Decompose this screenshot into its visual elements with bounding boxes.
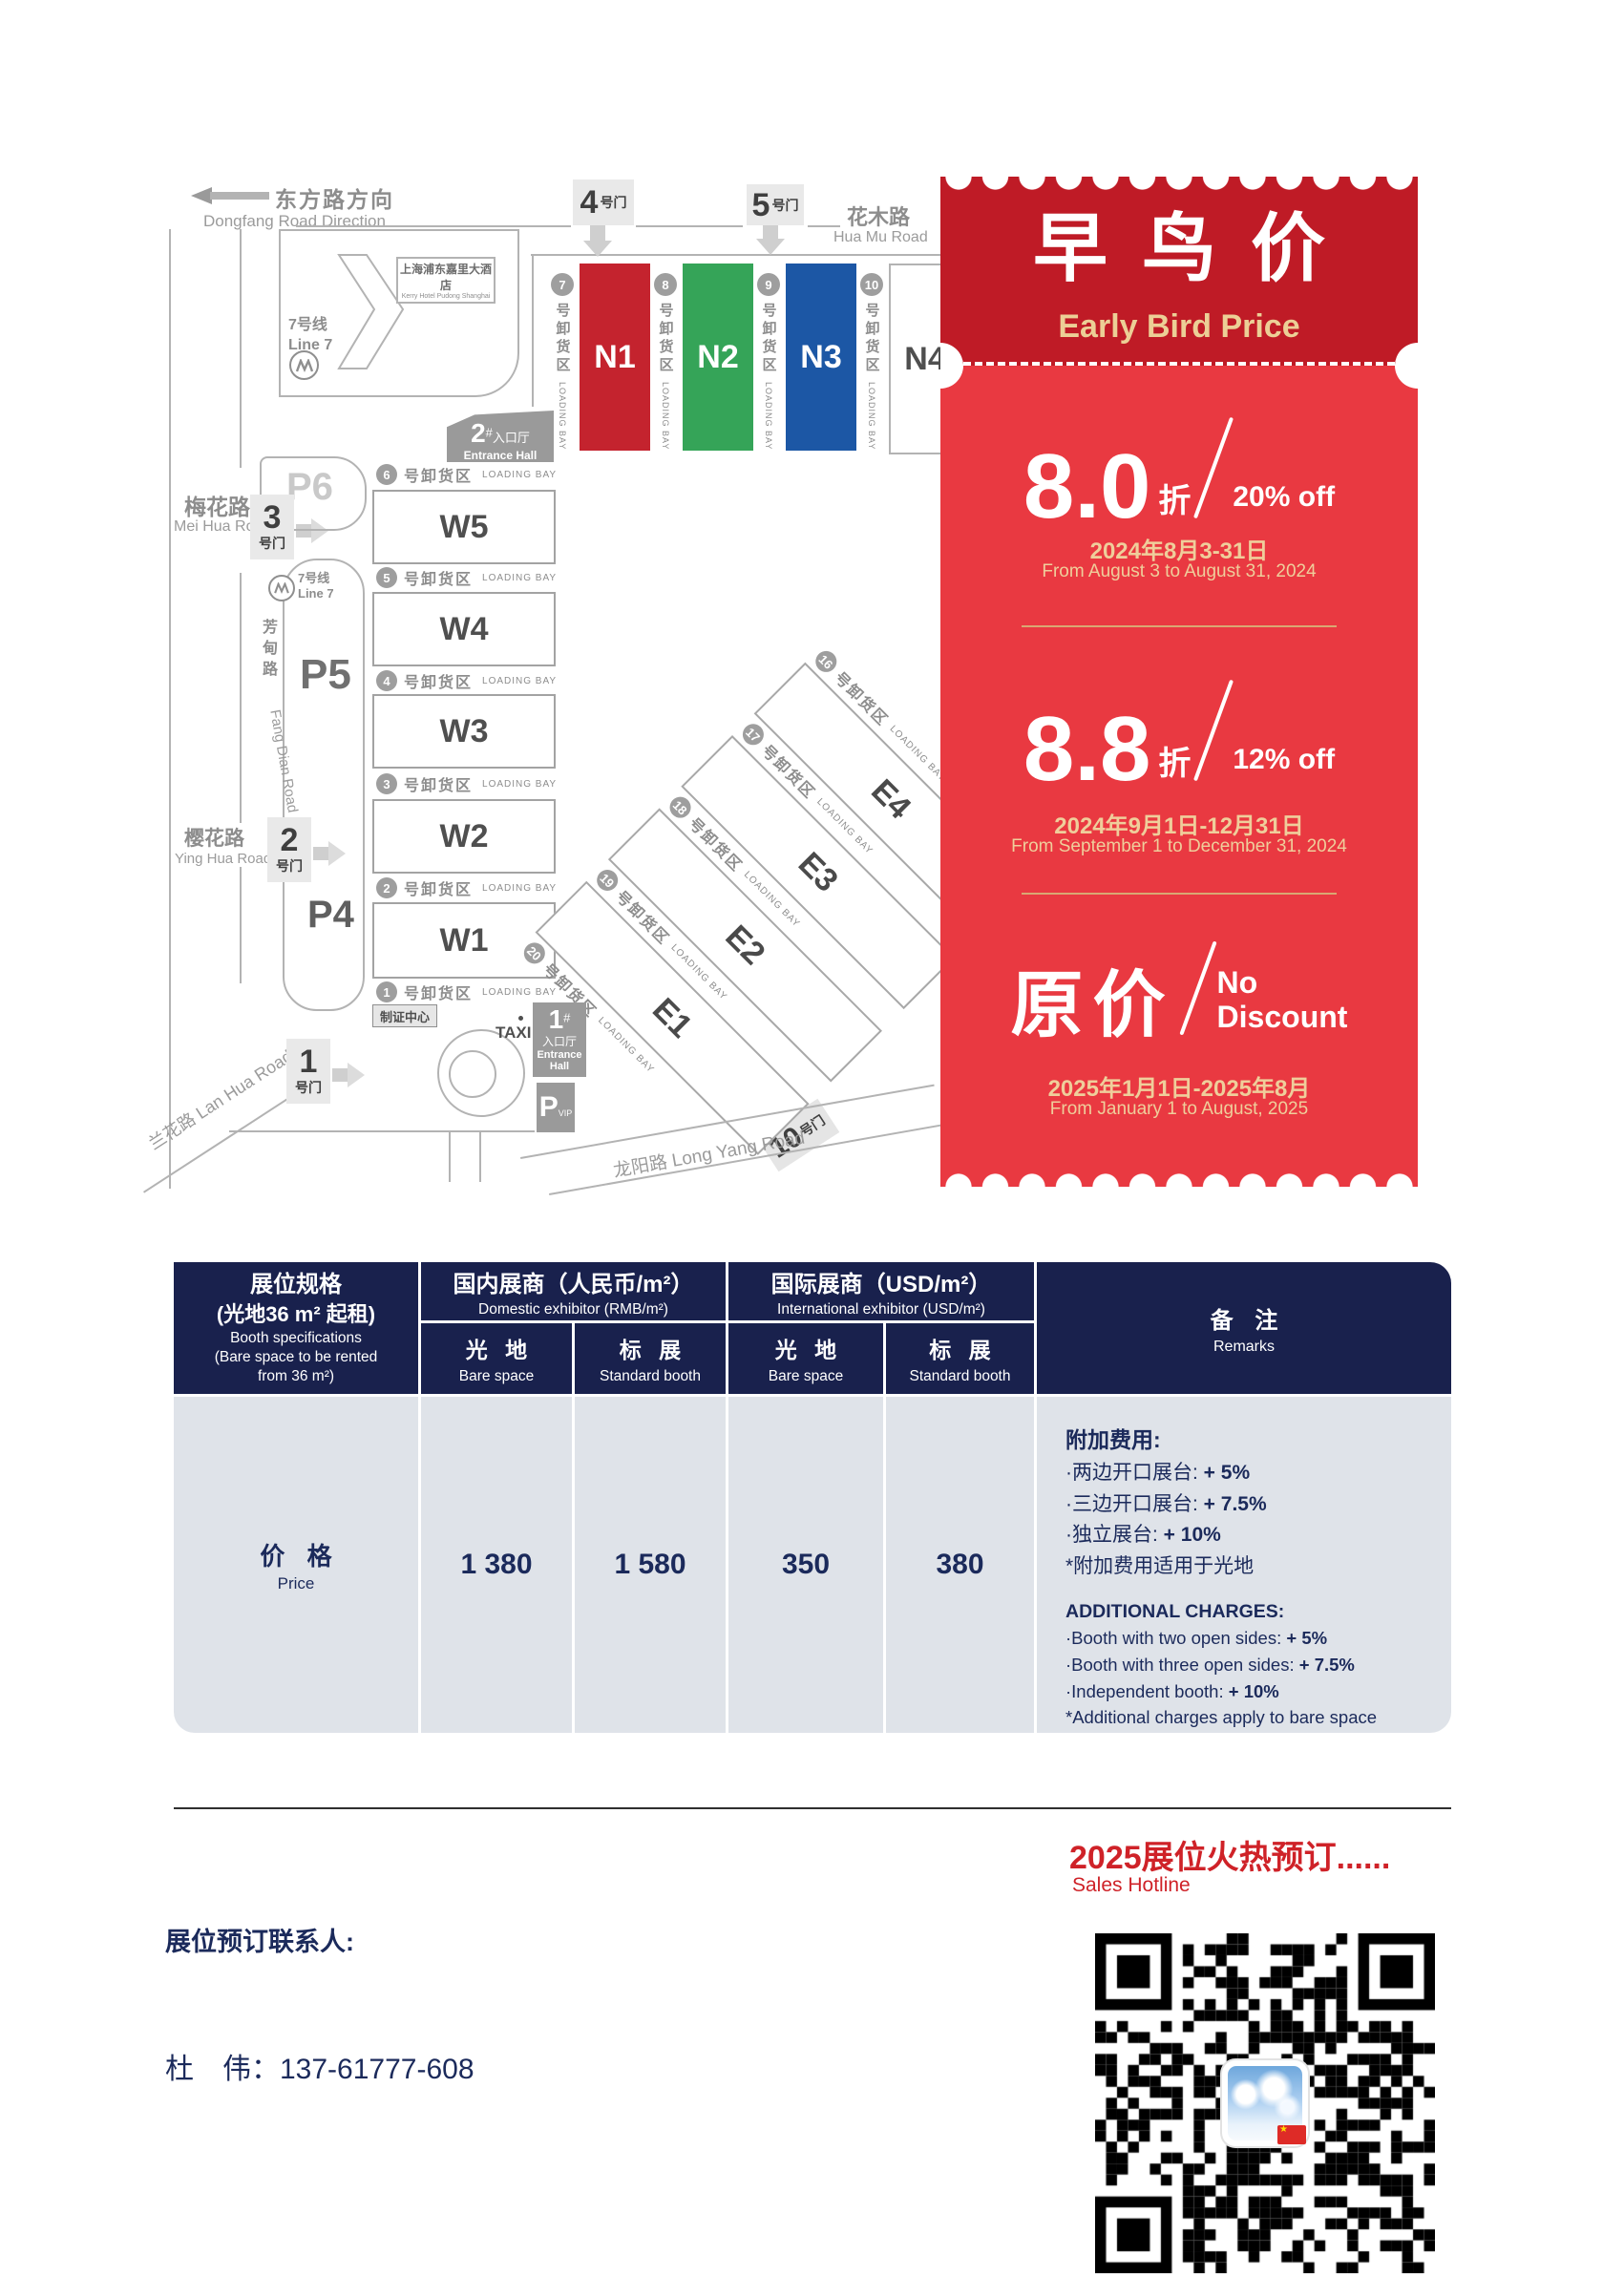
loading-bay-6: 6号卸货区LOADING BAY xyxy=(376,464,586,485)
gate-5-arrow-head xyxy=(756,239,785,255)
dongfang-road-label-en: Dongfang Road Direction xyxy=(203,212,386,231)
early-bird-ticket: 早鸟价 Early Bird Price 8.0 折 20% off 2024年… xyxy=(940,177,1418,1187)
bay-number-badge: 1 xyxy=(376,981,397,1002)
ticket-title-zh: 早鸟价 xyxy=(940,211,1418,285)
road-line xyxy=(229,1130,535,1132)
hall-w5: W5 xyxy=(372,490,556,564)
spec-header-cell: 展位规格 (光地36 m² 起租) Booth specifications (… xyxy=(174,1262,418,1394)
tier-3-date-en: From January 1 to August, 2025 xyxy=(940,1099,1418,1120)
tier-1-date-en: From August 3 to August 31, 2024 xyxy=(940,561,1418,582)
metro-line7-label: 7号线 Line 7 xyxy=(288,316,332,356)
gate-5: 5号门 xyxy=(747,184,804,225)
meihua-road-zh: 梅花路 xyxy=(181,489,253,521)
tier-1: 8.0 折 20% off xyxy=(940,411,1418,525)
loading-bay-2: 2号卸货区LOADING BAY xyxy=(376,877,586,898)
bay-number-badge: 2 xyxy=(376,877,397,898)
price-international-bare: 350 xyxy=(726,1394,883,1733)
contact-name: 杜 伟： xyxy=(165,2054,280,2085)
tier-3-date-zh: 2025年1月1日-2025年8月 xyxy=(940,1069,1418,1103)
road-line xyxy=(808,225,840,227)
gold-separator xyxy=(1022,625,1337,627)
road-line xyxy=(532,254,534,407)
hotel-label-box: 上海浦东嘉里大酒店 Kerry Hotel Pudong Shanghai xyxy=(396,257,496,304)
tier-1-date-zh: 2024年8月3-31日 xyxy=(940,532,1418,565)
loading-bay-4: 4号卸货区LOADING BAY xyxy=(376,670,586,691)
badge-center-box: 制证中心 xyxy=(372,1004,437,1027)
parking-p5: P5 xyxy=(300,651,351,699)
remarks-body: 附加费用: ·两边开口展台: + 5% ·三边开口展台: + 7.5% ·独立展… xyxy=(1034,1394,1451,1733)
remark-item: ·Independent booth: + 10% xyxy=(1065,1678,1428,1705)
domestic-bare-header: 光 地 Bare space xyxy=(418,1320,572,1394)
china-flag-icon: ★ xyxy=(1277,2125,1306,2144)
bay-number-badge: 6 xyxy=(376,464,397,485)
hotline-subtitle: Sales Hotline xyxy=(1072,1874,1191,1897)
remark-item: ·独立展台: + 10% xyxy=(1065,1520,1428,1551)
tier-2-date-zh: 2024年9月1日-12月31日 xyxy=(940,807,1418,840)
tier-2-date-en: From September 1 to December 31, 2024 xyxy=(940,836,1418,857)
gate-5-arrow xyxy=(763,225,778,239)
remark-item: ·三边开口展台: + 7.5% xyxy=(1065,1489,1428,1521)
remark-item: ·Booth with two open sides: + 5% xyxy=(1065,1625,1428,1652)
bay-number-badge: 5 xyxy=(376,567,397,588)
metro-logo-icon xyxy=(289,350,319,380)
price-row-label: 价 格 Price xyxy=(174,1394,418,1733)
slash-divider xyxy=(1193,680,1234,782)
hall-w4: W4 xyxy=(372,592,556,666)
vip-parking: PVIP xyxy=(537,1083,575,1132)
flyer-page: 东方路方向 Dongfang Road Direction 上海浦东嘉里大酒店 … xyxy=(0,0,1624,2278)
gate-1-arrow xyxy=(332,1068,348,1082)
remark-item: ·两边开口展台: + 5% xyxy=(1065,1458,1428,1489)
dongfang-road-label-zh: 东方路方向 xyxy=(275,181,394,214)
ticket-title-en: Early Bird Price xyxy=(940,308,1418,346)
qr-center-logo: ★ xyxy=(1222,2060,1308,2146)
international-standard-header: 标 展 Standard booth xyxy=(883,1320,1034,1394)
gate-4-arrow-head xyxy=(583,241,612,257)
price-table: 展位规格 (光地36 m² 起租) Booth specifications (… xyxy=(174,1262,1451,1733)
west-arrow-shaft xyxy=(210,192,269,200)
ticket-header: 早鸟价 Early Bird Price xyxy=(940,177,1418,366)
gate-1: 1号门 xyxy=(286,1039,330,1104)
road-line xyxy=(636,225,743,227)
loading-bay-7: 7号卸货区LOADING BAY xyxy=(550,273,575,450)
remarks-header-cell: 备 注 Remarks xyxy=(1034,1262,1451,1394)
metro-line7-label-2: 7号线 Line 7 xyxy=(298,571,334,602)
domestic-group-header: 国内展商（人民币/m²） Domestic exhibitor (RMB/m²) xyxy=(418,1262,726,1320)
remark-item: ·Booth with three open sides: + 7.5% xyxy=(1065,1652,1428,1678)
loading-bay-8: 8号卸货区LOADING BAY xyxy=(653,273,678,450)
hall-n2: N2 xyxy=(683,264,753,451)
huamu-road-zh: 花木路 xyxy=(844,200,913,231)
slash-divider xyxy=(1179,940,1216,1035)
lanhua-road-label: 兰花路 Lan Hua Road xyxy=(143,1044,297,1155)
loading-bay-9: 9号卸货区LOADING BAY xyxy=(756,273,781,450)
tier-3: 原价 No Discount xyxy=(940,936,1418,1041)
road-line xyxy=(240,229,242,468)
road-line xyxy=(479,1132,481,1182)
remark-note: *Additional charges apply to bare space xyxy=(1065,1704,1428,1731)
hotline-title: 2025展位火热预订...... xyxy=(1069,1831,1390,1878)
road-line xyxy=(240,573,242,983)
taxi-dot xyxy=(518,1016,523,1021)
west-arrow-icon xyxy=(191,187,212,204)
hall-n3: N3 xyxy=(786,264,856,451)
hotel-name-en: Kerry Hotel Pudong Shanghai xyxy=(398,293,494,300)
price-international-standard: 380 xyxy=(883,1394,1034,1733)
bay-number-badge: 3 xyxy=(376,773,397,794)
road-line xyxy=(449,1132,451,1182)
parking-p4: P4 xyxy=(307,894,354,937)
road-line xyxy=(169,229,171,1189)
yinghua-road-zh: 樱花路 xyxy=(181,823,247,852)
international-bare-header: 光 地 Bare space xyxy=(726,1320,883,1394)
gate-2: 2号门 xyxy=(267,817,311,882)
metro-logo-icon xyxy=(268,575,295,601)
gate-1-arrow-head xyxy=(348,1063,365,1087)
contact-phone: 137-61777-608 xyxy=(280,2054,475,2085)
domestic-standard-header: 标 展 Standard booth xyxy=(572,1320,726,1394)
hall-n1: N1 xyxy=(580,264,650,451)
contact-line: 杜 伟：137-61777-608 xyxy=(165,2045,475,2087)
gate-3: 3号门 xyxy=(250,495,294,559)
huamu-road-en: Hua Mu Road xyxy=(831,229,931,246)
bay-number-badge: 4 xyxy=(376,670,397,691)
ticket-scallop-top xyxy=(940,177,1418,191)
gold-separator xyxy=(1022,893,1337,895)
gate-4-arrow xyxy=(590,225,605,241)
entrance-hall-2: 2#入口厅 Entrance Hall xyxy=(447,411,554,462)
contact-title: 展位预订联系人: xyxy=(165,1921,354,1958)
tier-2: 8.8 折 12% off xyxy=(940,673,1418,788)
loading-bay-10: 10号卸货区LOADING BAY xyxy=(859,273,884,450)
slash-divider xyxy=(1193,417,1234,519)
price-domestic-bare: 1 380 xyxy=(418,1394,572,1733)
footer-divider xyxy=(174,1807,1451,1809)
loading-bay-5: 5号卸货区LOADING BAY xyxy=(376,567,586,588)
price-domestic-standard: 1 580 xyxy=(572,1394,726,1733)
fangdian-road-zh: 芳甸路 xyxy=(256,619,279,682)
roundabout-inner xyxy=(449,1050,496,1098)
hotel-name-zh: 上海浦东嘉里大酒店 xyxy=(398,261,494,293)
entrance-hall-1: 1# 入口厅 Entrance Hall xyxy=(533,1002,586,1077)
taxi-label: TAXI xyxy=(496,1023,531,1043)
international-group-header: 国际展商（USD/m²） International exhibitor (US… xyxy=(726,1262,1034,1320)
no-discount-label: No Discount xyxy=(1217,966,1348,1035)
road-line xyxy=(296,225,571,227)
loading-bay-3: 3号卸货区LOADING BAY xyxy=(376,773,586,794)
remark-note: *附加费用适用于光地 xyxy=(1065,1551,1428,1583)
gate-4: 4号门 xyxy=(573,179,634,225)
hall-w2: W2 xyxy=(372,799,556,874)
yinghua-road-en: Ying Hua Road xyxy=(172,851,274,867)
ticket-scallop-bottom xyxy=(940,1172,1418,1187)
hall-w3: W3 xyxy=(372,694,556,769)
wechat-qr: ★ xyxy=(1095,1933,1435,2273)
